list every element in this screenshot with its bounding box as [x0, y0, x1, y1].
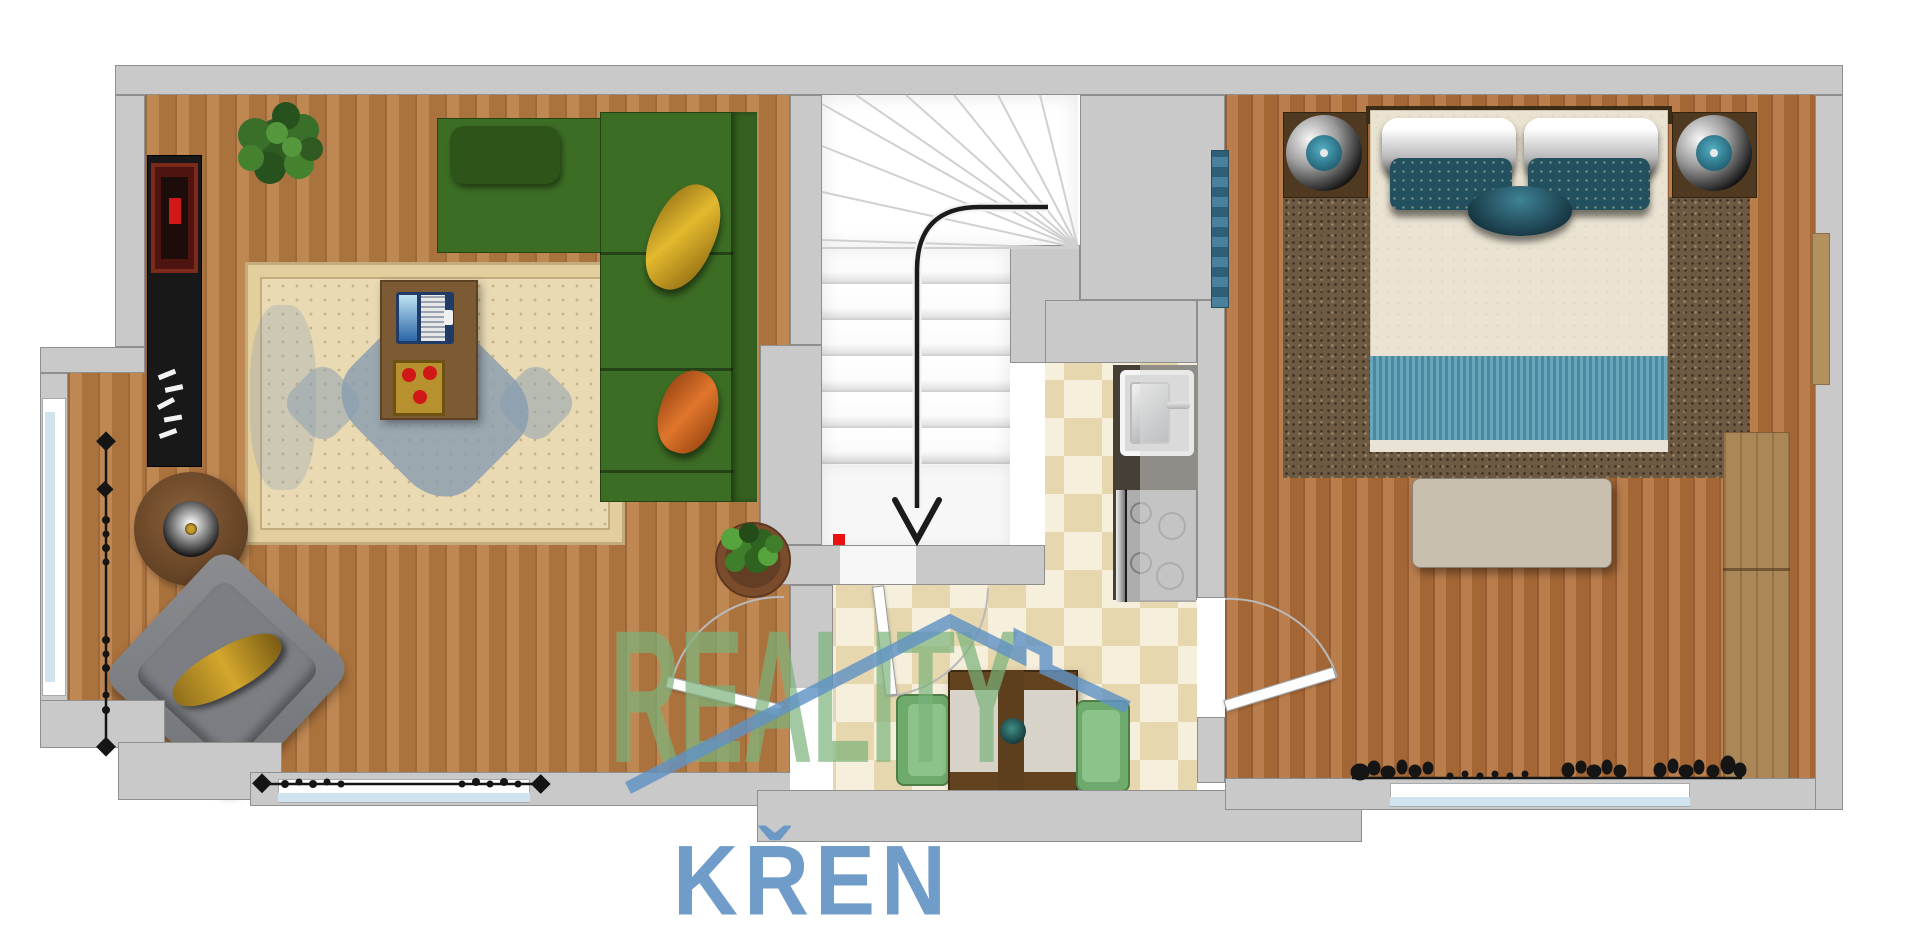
floorplan-canvas: REALITY KŘEN: [0, 0, 1920, 925]
watermark-house-icon: [0, 0, 1920, 925]
